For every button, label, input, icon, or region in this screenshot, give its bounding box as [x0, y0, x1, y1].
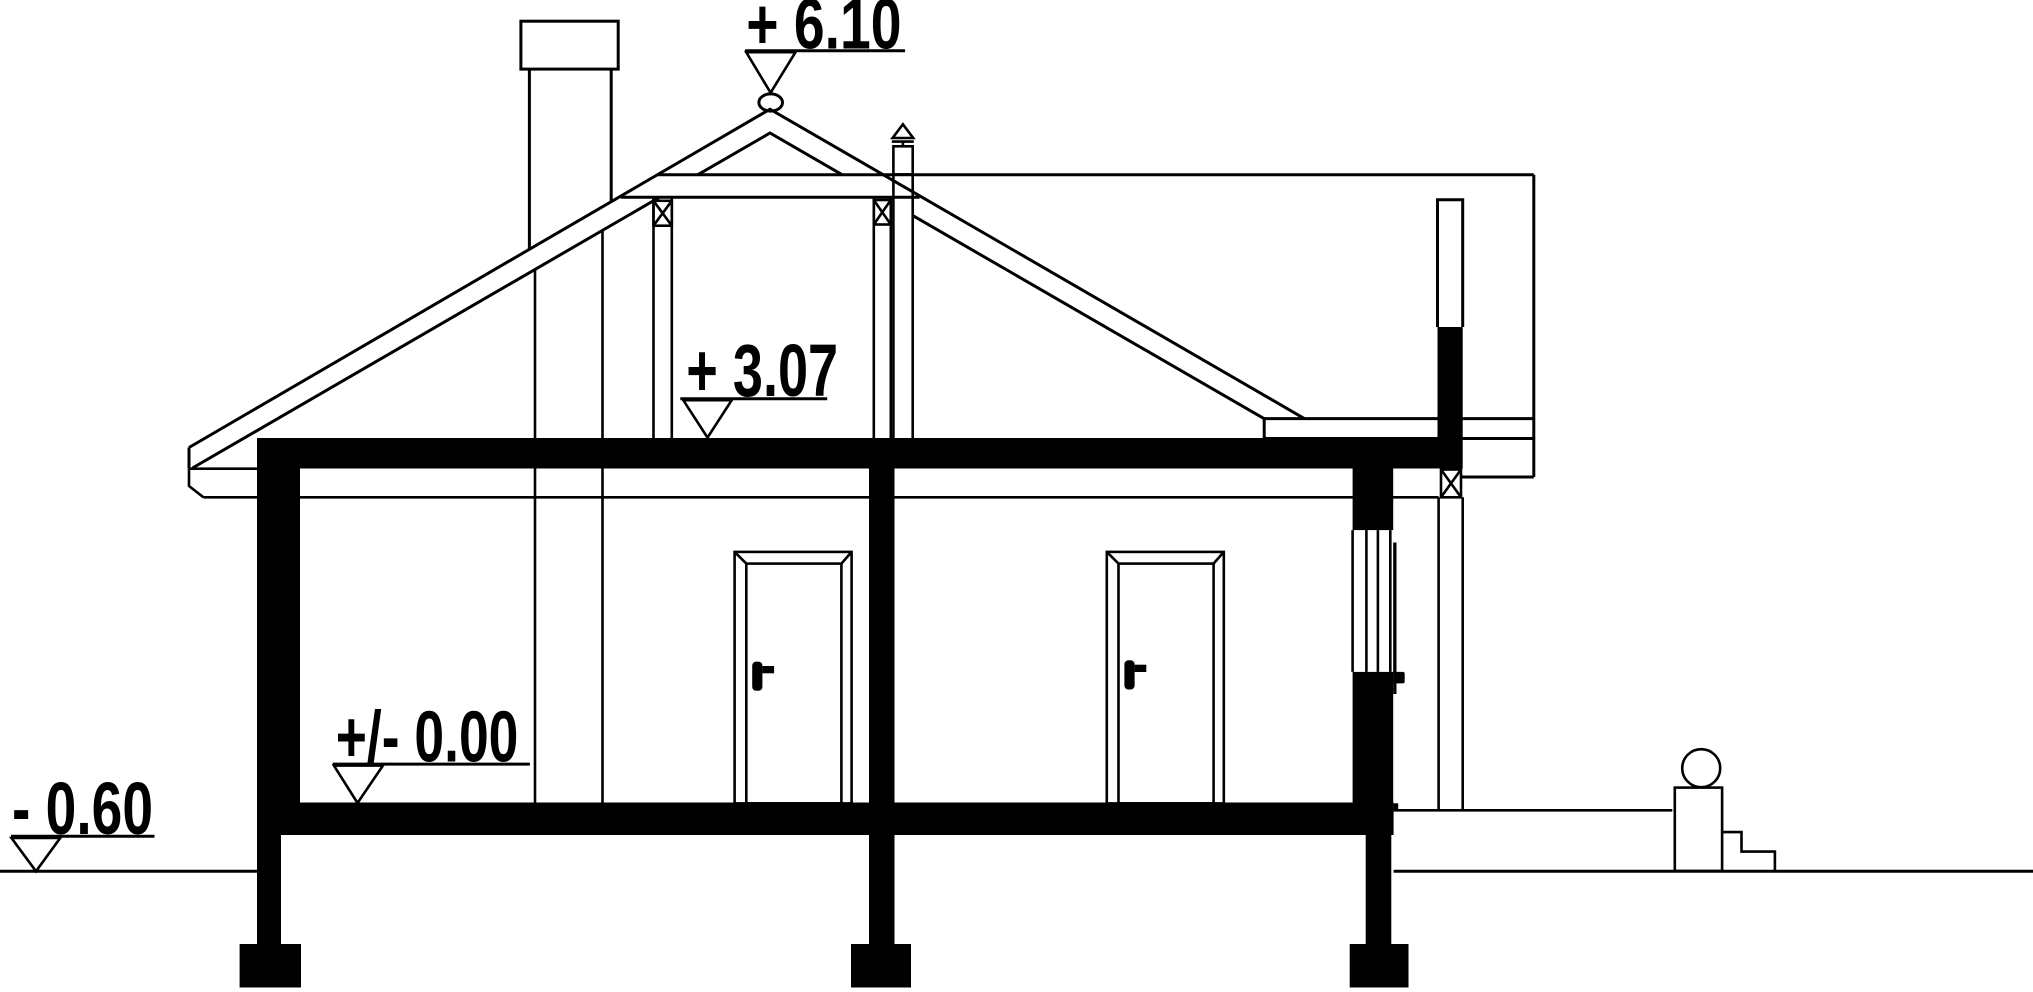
svg-text:+ 6.10: + 6.10 — [746, 0, 901, 65]
